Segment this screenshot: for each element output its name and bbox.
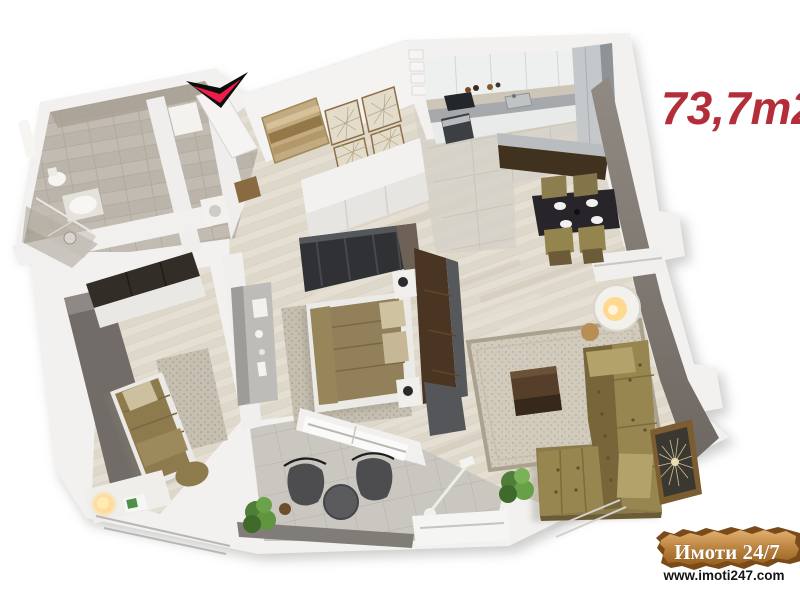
svg-text:www.imoti247.com: www.imoti247.com	[662, 568, 784, 583]
svg-text:73,7m2: 73,7m2	[661, 82, 800, 134]
svg-text:Имоти 24/7: Имоти 24/7	[674, 540, 780, 564]
